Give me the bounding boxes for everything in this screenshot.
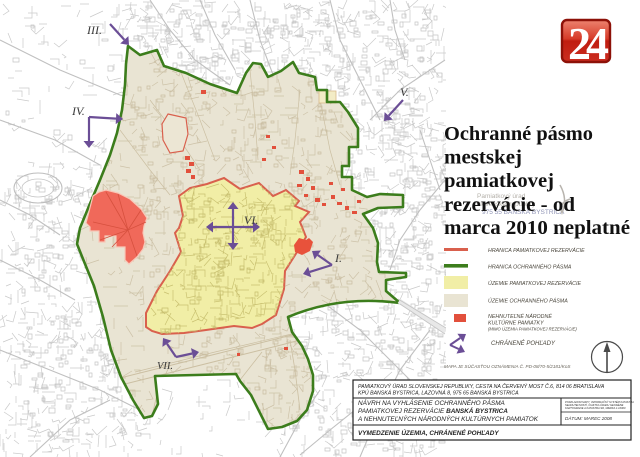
svg-text:KULTÚRNE PAMIATKY: KULTÚRNE PAMIATKY [488, 320, 544, 327]
svg-text:Ochranné pásmo: Ochranné pásmo [444, 123, 593, 145]
svg-text:ÚZEMIE PAMIATKOVEJ REZERVÁCIE: ÚZEMIE PAMIATKOVEJ REZERVÁCIE [488, 280, 581, 287]
svg-text:(MIMO ÚZEMIA PAMIATKOVEJ REZER: (MIMO ÚZEMIA PAMIATKOVEJ REZERVÁCIE) [488, 327, 577, 332]
svg-text:ÚZEMIE OCHRANNÉHO PÁSMA: ÚZEMIE OCHRANNÉHO PÁSMA [488, 298, 568, 305]
svg-text:VYMEDZENIE ÚZEMIA, CHRÁNENÉ PO: VYMEDZENIE ÚZEMIA, CHRÁNENÉ POHĽADY [358, 428, 499, 437]
svg-text:PAMIATKOVEJ REZERVÁCIE BANSKÁ: PAMIATKOVEJ REZERVÁCIE BANSKÁ BYSTRICA [358, 406, 508, 415]
svg-text:pamiatkovej: pamiatkovej [444, 170, 554, 192]
svg-text:I.: I. [334, 251, 342, 265]
svg-text:HRANICA OCHRANNÉHO PÁSMA: HRANICA OCHRANNÉHO PÁSMA [488, 264, 572, 271]
svg-text:KPÚ BANSKÁ BYSTRICA, LAZOVNÁ 8: KPÚ BANSKÁ BYSTRICA, LAZOVNÁ 8, 975 65 B… [358, 390, 519, 397]
svg-text:A NEHNUTEĽNÝCH NÁRODNÝCH KULTÚ: A NEHNUTEĽNÝCH NÁRODNÝCH KULTÚRNYCH PAMI… [357, 414, 539, 423]
svg-text:rezervácie - od: rezervácie - od [444, 194, 576, 216]
svg-text:CHRÁNENÉ POHĽADY: CHRÁNENÉ POHĽADY [491, 340, 556, 347]
svg-text:III.: III. [86, 23, 102, 37]
svg-text:DÁTUM: MAREC 2008: DÁTUM: MAREC 2008 [565, 415, 612, 421]
svg-text:MAPA JE SÚČASŤOU OZNÁMENIA Č.: MAPA JE SÚČASŤOU OZNÁMENIA Č. PD-08/70-5… [444, 362, 571, 369]
svg-text:NEHNUTEĽNÉ NÁRODNÉ: NEHNUTEĽNÉ NÁRODNÉ [488, 313, 552, 320]
svg-text:V.: V. [400, 85, 409, 99]
svg-text:PAMIATKOVÝ ÚRAD SLOVENSKEJ REP: PAMIATKOVÝ ÚRAD SLOVENSKEJ REPUBLIKY, CE… [358, 383, 605, 390]
svg-text:VII.: VII. [157, 361, 173, 372]
svg-text:KARTOGRAFIE A KATASTRA SR, MIE: KARTOGRAFIE A KATASTRA SR, MIERKA 1:1000… [565, 406, 626, 410]
svg-text:HRANICA PAMIATKOVEJ REZERVÁCIE: HRANICA PAMIATKOVEJ REZERVÁCIE [488, 247, 585, 254]
svg-text:mestskej: mestskej [444, 147, 522, 169]
svg-text:IV.: IV. [71, 104, 85, 118]
svg-text:NÁVRH NA VYHLÁSENIE OCHRANNÉHO: NÁVRH NA VYHLÁSENIE OCHRANNÉHO PÁSMA [358, 398, 505, 407]
svg-text:marca 2010 neplatné: marca 2010 neplatné [444, 217, 630, 239]
svg-text:24: 24 [568, 18, 609, 69]
svg-text:VI.: VI. [244, 213, 258, 227]
